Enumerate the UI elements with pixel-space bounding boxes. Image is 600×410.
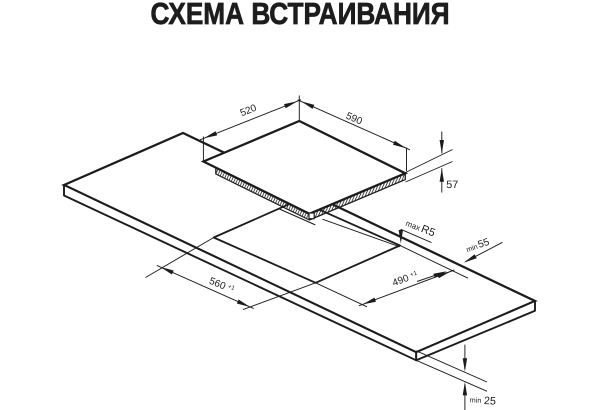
svg-text:min25: min25 [469, 394, 496, 407]
svg-text:maxR5: maxR5 [404, 217, 437, 240]
svg-text:min55: min55 [465, 237, 492, 255]
svg-text:590: 590 [344, 111, 364, 128]
svg-text:560+1: 560+1 [207, 276, 236, 296]
svg-text:57: 57 [446, 179, 458, 191]
svg-text:520: 520 [239, 103, 259, 120]
